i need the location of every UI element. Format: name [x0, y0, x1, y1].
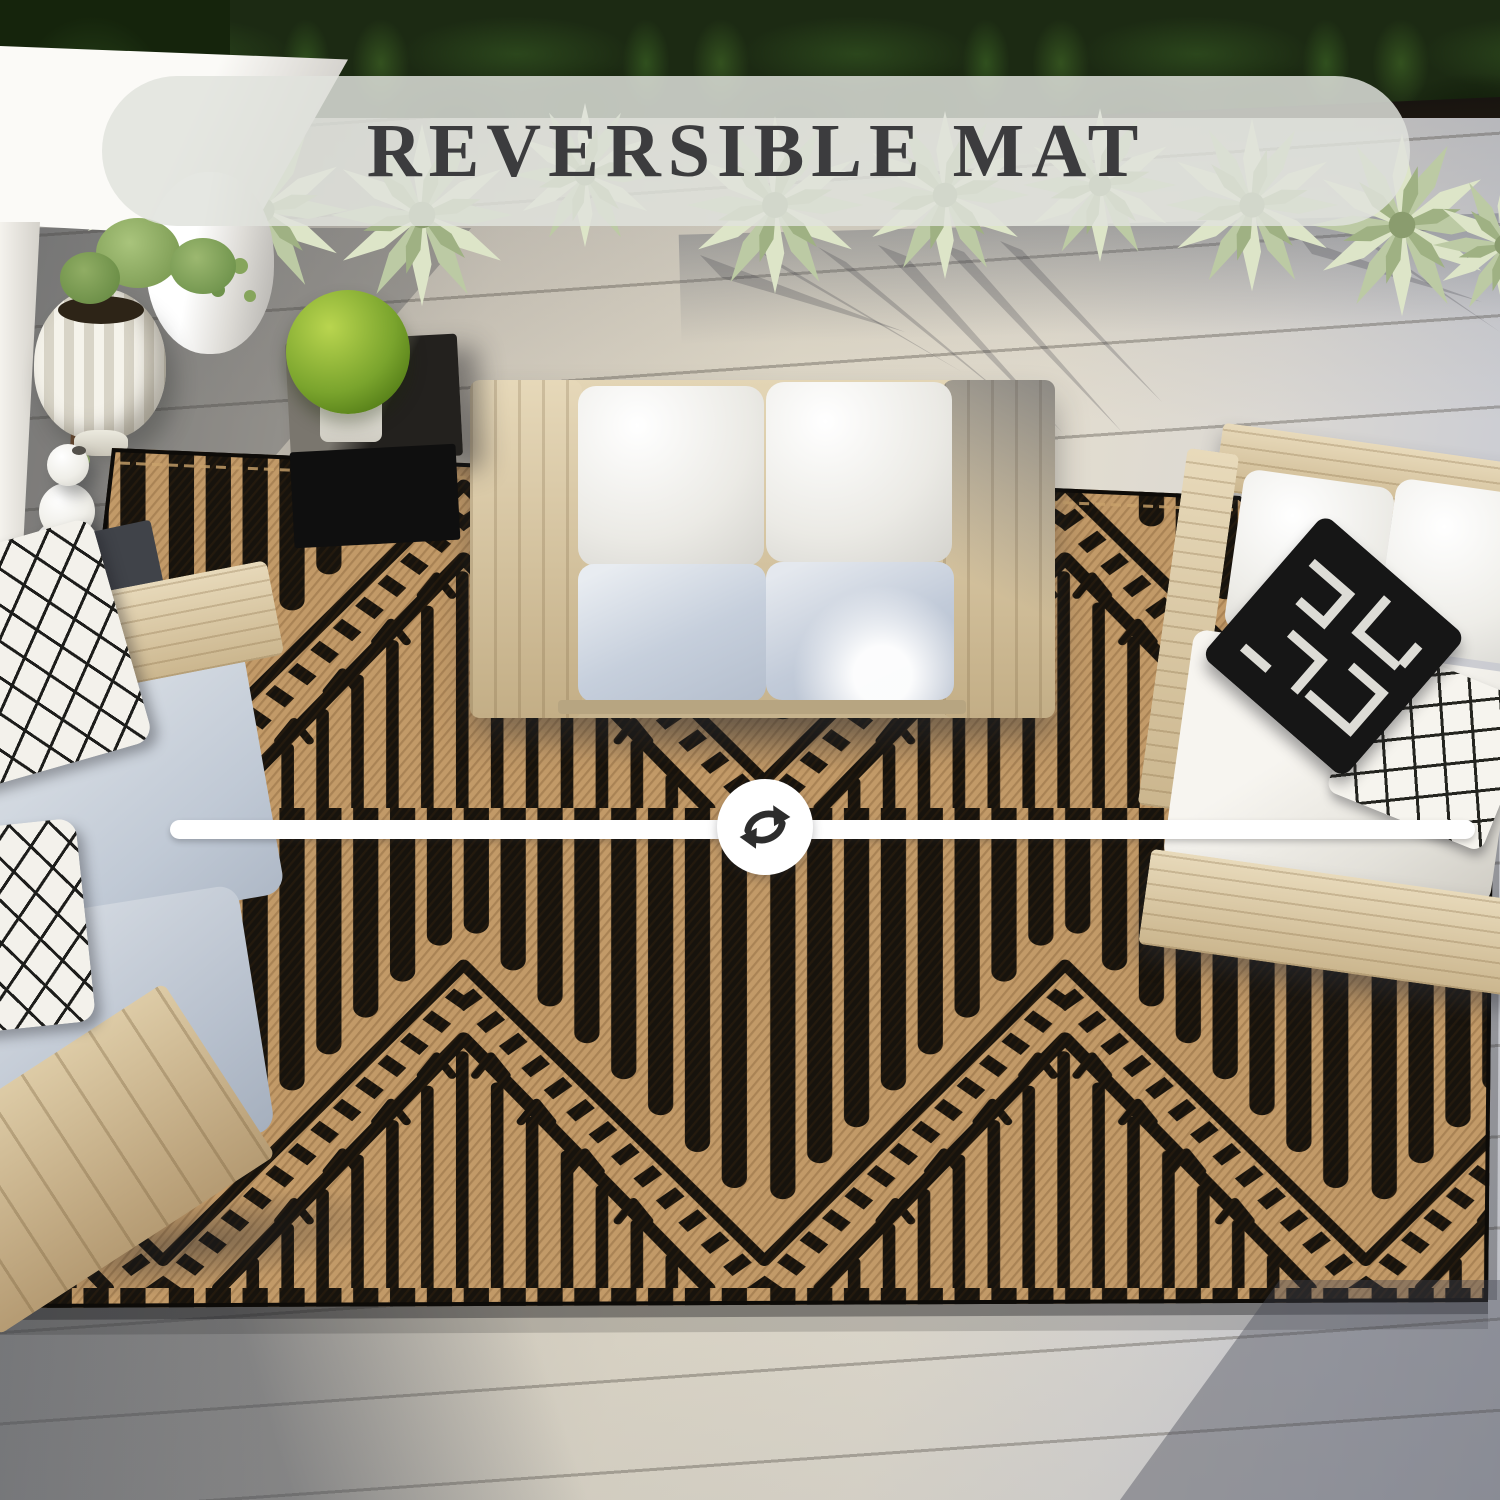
sofa-back-cushion-left [578, 386, 764, 566]
reversible-divider-bar [170, 820, 1475, 839]
urn-plant-foliage [170, 238, 236, 294]
black-cube-table-side [290, 444, 461, 549]
urn-plant-foliage [60, 252, 120, 304]
green-ball-plant [286, 290, 410, 414]
sofa-back-cushion-right [766, 382, 952, 562]
sofa-base-rail [558, 700, 966, 714]
reverse-arrows-icon [736, 798, 794, 856]
center-sofa [470, 380, 1055, 718]
banner-title: REVERSIBLE MAT [367, 108, 1146, 195]
sofa-seat-cushion-right [766, 562, 954, 700]
product-photo-scene: REVERSIBLE MAT [0, 0, 1500, 1500]
sofa-left-armrest [470, 380, 582, 718]
banner-pill: REVERSIBLE MAT [102, 76, 1410, 226]
sofa-seat-cushion-left [578, 564, 766, 702]
flip-badge [717, 779, 813, 875]
vase-opening [72, 446, 86, 455]
right-armchair [994, 402, 1500, 1043]
